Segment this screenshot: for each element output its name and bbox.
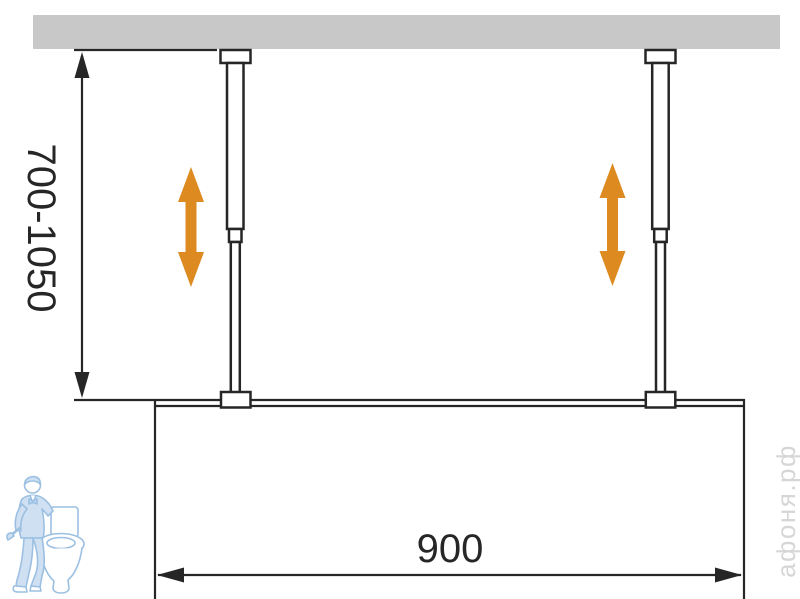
left-rod-lower-bar [231, 242, 240, 393]
right-rod-upper-tube [652, 63, 669, 229]
watermark-site-text: афоня.рф [771, 431, 800, 591]
height-dimension-label: 700-1050 [20, 138, 62, 318]
left-rod-upper-tube [227, 63, 244, 229]
plumber-right-shoe [30, 586, 41, 591]
dimension-arrowhead-up-icon [75, 52, 90, 78]
left-rod-ceiling-bracket [221, 50, 251, 63]
right-support-rod [646, 50, 676, 408]
plumber-with-toilet-logo [4, 474, 88, 596]
shower-screen-installation-diagram: 700-1050 900 [0, 0, 800, 599]
toilet-tank [51, 507, 78, 537]
dimension-arrowhead-left-icon [157, 568, 184, 583]
left-rod-adjuster-collar [229, 229, 242, 242]
width-dimension-label: 900 [360, 528, 540, 570]
diagram-drawing [0, 0, 800, 599]
toilet-bowl [40, 548, 82, 593]
plumber-left-leg [16, 538, 33, 587]
plumber-left-shoe [13, 586, 27, 592]
right-rod-adjuster-collar [654, 229, 667, 242]
left-support-rod [221, 50, 251, 408]
dimension-arrowhead-right-icon [715, 568, 742, 583]
wrench-head [7, 533, 14, 540]
toilet-rim [47, 538, 75, 549]
left-glass-clamp [221, 392, 251, 408]
right-glass-clamp [646, 392, 676, 408]
right-adjust-arrow-icon [600, 163, 626, 286]
dimension-arrowhead-down-icon [75, 372, 90, 398]
left-adjust-arrow-icon [178, 167, 204, 287]
right-rod-ceiling-bracket [646, 50, 676, 63]
right-rod-lower-bar [656, 242, 665, 393]
